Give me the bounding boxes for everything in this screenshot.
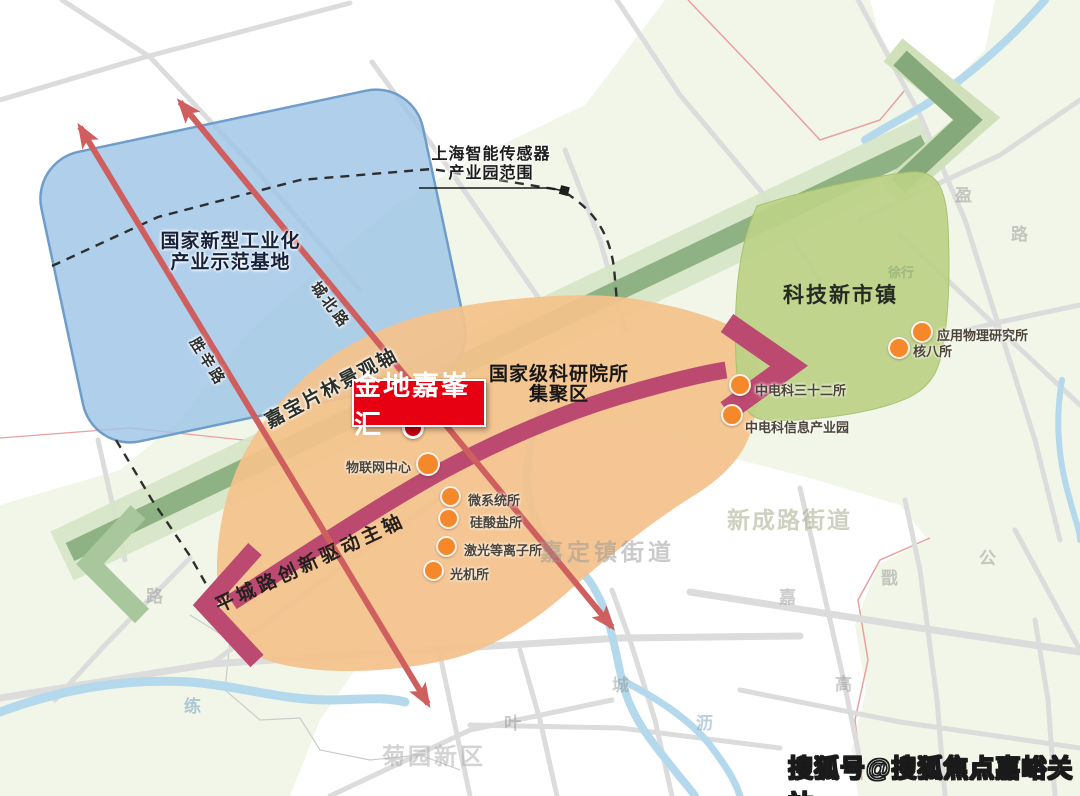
poi-dot-silicate — [438, 508, 459, 529]
poi-label-cetc-info-park: 中电科信息产业园 — [745, 417, 849, 436]
base-label: 公 — [979, 549, 996, 568]
research-cluster-title: 国家级科研院所 集聚区 — [470, 365, 648, 405]
base-label: 戬 — [881, 569, 898, 588]
poi-dot-laser-plasma — [436, 536, 457, 557]
district-jiadingzhen: 嘉定镇街道 — [540, 533, 675, 567]
poi-label-optics: 光机所 — [450, 564, 489, 583]
watermark: 搜狐号@搜狐焦点嘉峪关站 — [788, 749, 1080, 796]
poi-label-iot-center: 物联网中心 — [346, 457, 411, 476]
project-marker: 金地嘉峯汇 — [352, 379, 486, 427]
sensor-park-label: 上海智能传感器 产业园范围 — [415, 145, 567, 183]
industrial-base-title: 国家新型工业化 产业示范基地 — [138, 231, 323, 273]
research-cluster-title-line1: 国家级科研院所 — [470, 365, 648, 385]
poi-dot-iot-center — [416, 452, 440, 476]
poi-dot-nuclear8 — [888, 337, 910, 359]
sensor-park-label-line1: 上海智能传感器 — [415, 145, 567, 164]
poi-dot-cetc32 — [729, 374, 751, 396]
base-label: 高 — [835, 674, 852, 694]
industrial-base-title-line1: 国家新型工业化 — [138, 231, 323, 252]
poi-label-applied-physics: 应用物理研究所 — [937, 325, 1028, 344]
poi-label-laser-plasma: 激光等离子所 — [464, 540, 542, 559]
poi-dot-optics — [423, 560, 444, 581]
base-label: 沥 — [696, 714, 713, 733]
poi-label-cetc32: 中电科三十二所 — [755, 380, 846, 399]
district-juyuanxinqu: 菊园新区 — [382, 737, 486, 771]
poi-dot-cetc-info-park — [721, 404, 743, 426]
base-label: 徐行 — [887, 265, 914, 280]
poi-label-silicate: 硅酸盐所 — [470, 512, 522, 531]
base-label: 城 — [612, 676, 629, 695]
district-xinchenglu: 新成路街道 — [727, 501, 852, 535]
industrial-base-title-line2: 产业示范基地 — [138, 252, 323, 273]
sensor-park-label-line2: 产业园范围 — [415, 164, 567, 183]
research-cluster-title-line2: 集聚区 — [470, 385, 648, 405]
poi-dot-microsystems — [440, 486, 461, 507]
poi-label-microsystems: 微系统所 — [468, 490, 520, 509]
planning-map: 路 练 叶 城 沥 嘉 戬 公 高 路 盈 徐行 国家新型工业化 产业示范基地 … — [0, 0, 1080, 796]
base-label: 路 — [1011, 224, 1029, 244]
base-label: 练 — [184, 696, 201, 716]
base-label: 叶 — [504, 714, 521, 733]
base-label: 嘉 — [778, 587, 796, 607]
poi-dot-applied-physics — [911, 321, 933, 343]
tech-town-title: 科技新市镇 — [783, 279, 898, 309]
base-label: 路 — [146, 586, 164, 606]
base-label: 盈 — [954, 186, 972, 205]
